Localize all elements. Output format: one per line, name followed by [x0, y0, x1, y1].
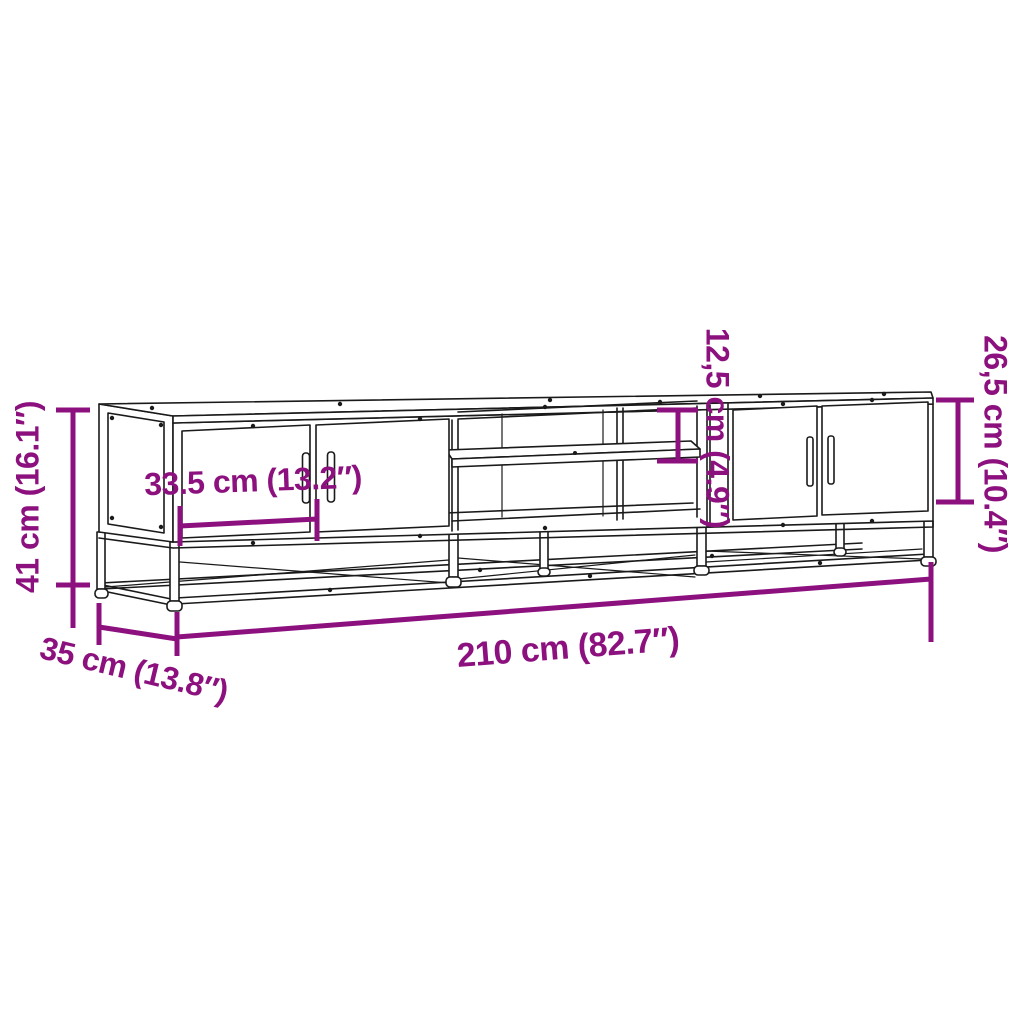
tv-stand-line-drawing [0, 0, 1024, 1024]
depth-dimension-line [99, 603, 177, 645]
height-dimension-label: 41 cm (16.1″) [10, 401, 47, 593]
height-dimension-line [56, 408, 90, 628]
shelf-height-dimension-label: 12,5 cm (4.9″) [699, 328, 736, 528]
door-width-dimension-label: 33.5 cm (13.2″) [144, 459, 363, 504]
side-height-dimension-label: 26,5 cm (10.4″) [977, 335, 1014, 553]
door-handle [828, 436, 834, 484]
door-handle [807, 437, 813, 486]
diagram-canvas: 41 cm (16.1″) 35 cm (13.8″) 210 cm (82.7… [0, 0, 1024, 1024]
side-height-dimension-line [936, 400, 974, 502]
